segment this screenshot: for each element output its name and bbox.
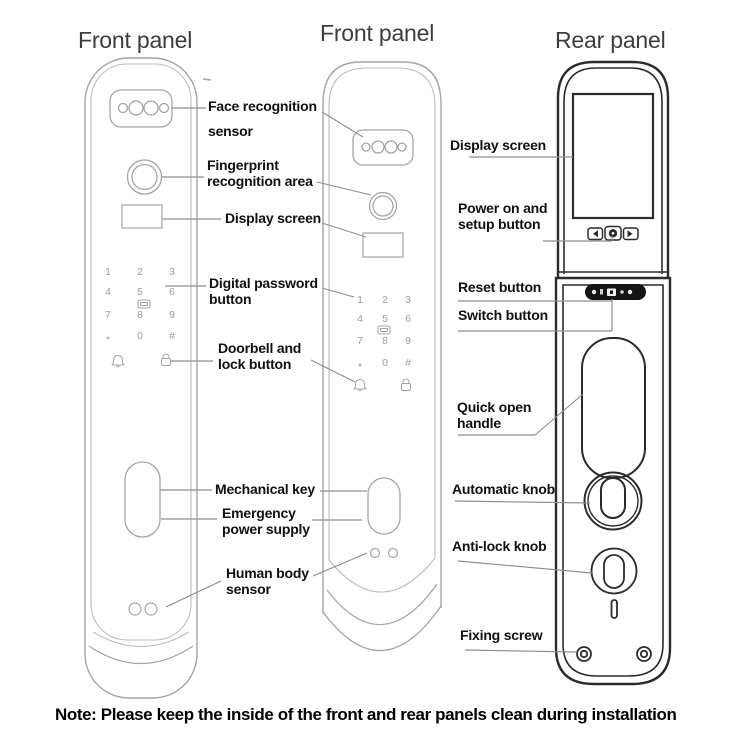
- stray-mark: [203, 79, 211, 80]
- face-recognition-sensor: [110, 90, 172, 127]
- anti-lock-knob: [592, 549, 637, 594]
- label-emergency-power: Emergency power supply: [222, 506, 310, 538]
- keycard-icon: [138, 300, 150, 308]
- mechanical-key-slot: [125, 462, 160, 537]
- svg-text:9: 9: [405, 335, 411, 347]
- front-panel-middle-drawing: 1 2 3 4 5 6 7 8 9 * 0 #: [323, 62, 441, 651]
- fixing-screws: [577, 647, 651, 661]
- svg-text:*: *: [358, 361, 362, 373]
- automatic-knob: [585, 473, 642, 530]
- bottom-cap-outer: [89, 646, 193, 664]
- door-lock-diagram: 1 2 3 4 5 6 7 8 9 * 0 #: [0, 0, 750, 750]
- right-arrow-icon: [628, 230, 633, 237]
- diagram-line-art: 1 2 3 4 5 6 7 8 9 * 0 #: [0, 0, 750, 750]
- title-front-panel-left: Front panel: [78, 27, 192, 54]
- human-body-sensor-dots: [129, 603, 157, 615]
- label-digital-password: Digital password button: [209, 276, 318, 308]
- svg-text:#: #: [405, 357, 411, 369]
- svg-text:4: 4: [105, 286, 111, 298]
- svg-text:0: 0: [137, 330, 143, 342]
- left-arrow-icon: [593, 230, 598, 237]
- indicator-slot: [612, 600, 618, 618]
- display-screen-front: [363, 233, 403, 257]
- rear-panel-drawing: [556, 62, 670, 684]
- sleeve-seam: [327, 584, 437, 625]
- keycard-icon: [378, 326, 390, 334]
- label-anti-lock-knob: Anti-lock knob: [452, 539, 546, 555]
- svg-text:*: *: [106, 334, 110, 346]
- label-power-setup-button: Power on and setup button: [458, 201, 547, 233]
- bell-icon: [112, 356, 124, 367]
- label-display-screen-front: Display screen: [225, 211, 321, 227]
- svg-text:3: 3: [405, 294, 411, 306]
- title-rear-panel: Rear panel: [555, 27, 666, 54]
- svg-text:2: 2: [382, 294, 388, 306]
- fingerprint-sensor: [370, 193, 397, 220]
- svg-text:9: 9: [169, 309, 175, 321]
- svg-text:1: 1: [105, 266, 111, 278]
- human-body-sensor-dots: [371, 549, 398, 558]
- svg-text:5: 5: [382, 313, 388, 325]
- inner-face-bottom: [329, 558, 435, 592]
- svg-text:3: 3: [169, 266, 175, 278]
- label-automatic-knob: Automatic knob: [452, 482, 555, 498]
- digital-keypad: 1 2 3 4 5 6 7 8 9 * 0 #: [105, 266, 175, 367]
- rear-upper-inner: [564, 68, 662, 274]
- svg-text:1: 1: [357, 294, 363, 306]
- reset-switch-assembly: [585, 284, 646, 300]
- label-human-body-sensor: Human body sensor: [226, 566, 309, 598]
- setup-button-row: [588, 227, 638, 241]
- svg-text:2: 2: [137, 266, 143, 278]
- padlock-icon: [162, 354, 171, 366]
- label-face-recognition-sensor: Face recognition sensor: [208, 94, 317, 144]
- quick-open-handle: [582, 338, 645, 478]
- label-quick-open-handle: Quick open handle: [457, 400, 531, 432]
- fingerprint-sensor: [128, 160, 162, 194]
- bell-icon: [354, 380, 366, 391]
- label-doorbell-lock: Doorbell and lock button: [218, 341, 301, 373]
- svg-text:8: 8: [382, 335, 388, 347]
- mechanical-key-slot: [368, 478, 400, 534]
- svg-text:8: 8: [137, 309, 143, 321]
- svg-text:6: 6: [169, 286, 175, 298]
- svg-text:4: 4: [357, 313, 363, 325]
- display-screen-front: [122, 205, 162, 228]
- face-recognition-sensor: [353, 130, 413, 165]
- outer-bottom: [323, 606, 441, 651]
- padlock-icon: [402, 379, 411, 391]
- svg-text:0: 0: [382, 357, 388, 369]
- label-fingerprint-area: Fingerprint recognition area: [207, 158, 313, 190]
- title-front-panel-middle: Front panel: [320, 20, 434, 47]
- svg-text:5: 5: [137, 286, 143, 298]
- svg-text:7: 7: [357, 335, 363, 347]
- digital-keypad: 1 2 3 4 5 6 7 8 9 * 0 #: [354, 294, 411, 391]
- installation-note: Note: Please keep the inside of the fron…: [55, 705, 676, 725]
- svg-text:7: 7: [105, 309, 111, 321]
- label-display-screen-rear: Display screen: [450, 138, 546, 154]
- svg-text:6: 6: [405, 313, 411, 325]
- label-switch-button: Switch button: [458, 308, 548, 324]
- display-screen-rear: [573, 94, 653, 218]
- label-reset-button: Reset button: [458, 280, 541, 296]
- label-fixing-screw: Fixing screw: [460, 628, 542, 644]
- front-panel-left-drawing: 1 2 3 4 5 6 7 8 9 * 0 #: [85, 58, 211, 698]
- svg-text:#: #: [169, 330, 175, 342]
- label-mechanical-key: Mechanical key: [215, 482, 315, 498]
